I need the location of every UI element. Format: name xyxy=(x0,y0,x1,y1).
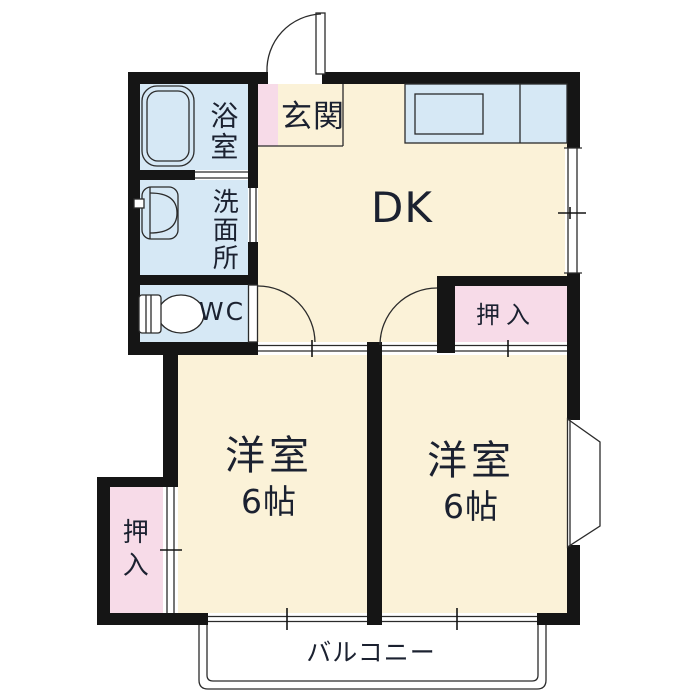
closet-dk-label: 押入 xyxy=(472,303,540,328)
bedroom-right-size: 6帖 xyxy=(399,490,543,525)
washroom-label: 洗面所 xyxy=(209,188,236,272)
bathroom-label: 浴室 xyxy=(208,101,237,163)
kitchen-counter-icon xyxy=(405,84,567,143)
bathroom-door-icon xyxy=(195,170,248,180)
bedroom-left-name: 洋室 xyxy=(197,435,341,477)
genkan-strip xyxy=(258,84,278,146)
bedroom-left-doorway xyxy=(258,340,367,357)
closet-dk-sliding-door-icon xyxy=(455,340,567,357)
genkan-label: 玄関 xyxy=(281,101,343,134)
bay-window-icon xyxy=(568,419,601,547)
bedroom-right-label: 洋室 6帖 xyxy=(399,440,543,525)
floor-plan: 玄関 DK 浴室 洗面所 WC 押入 洋室 6帖 洋室 6帖 押入 バルコニー xyxy=(0,0,700,700)
washroom-door-icon xyxy=(248,188,258,242)
bedroom-right-name: 洋室 xyxy=(399,440,543,482)
closet-left-label: 押入 xyxy=(119,518,146,584)
floor-plan-drawing xyxy=(0,0,700,700)
dk-label: DK xyxy=(360,186,444,230)
balcony-label: バルコニー xyxy=(296,640,446,666)
bedroom-left-label: 洋室 6帖 xyxy=(197,435,341,520)
wc-label: WC xyxy=(194,299,250,325)
entrance-door-icon xyxy=(267,13,325,84)
bedroom-left-size: 6帖 xyxy=(197,485,341,520)
